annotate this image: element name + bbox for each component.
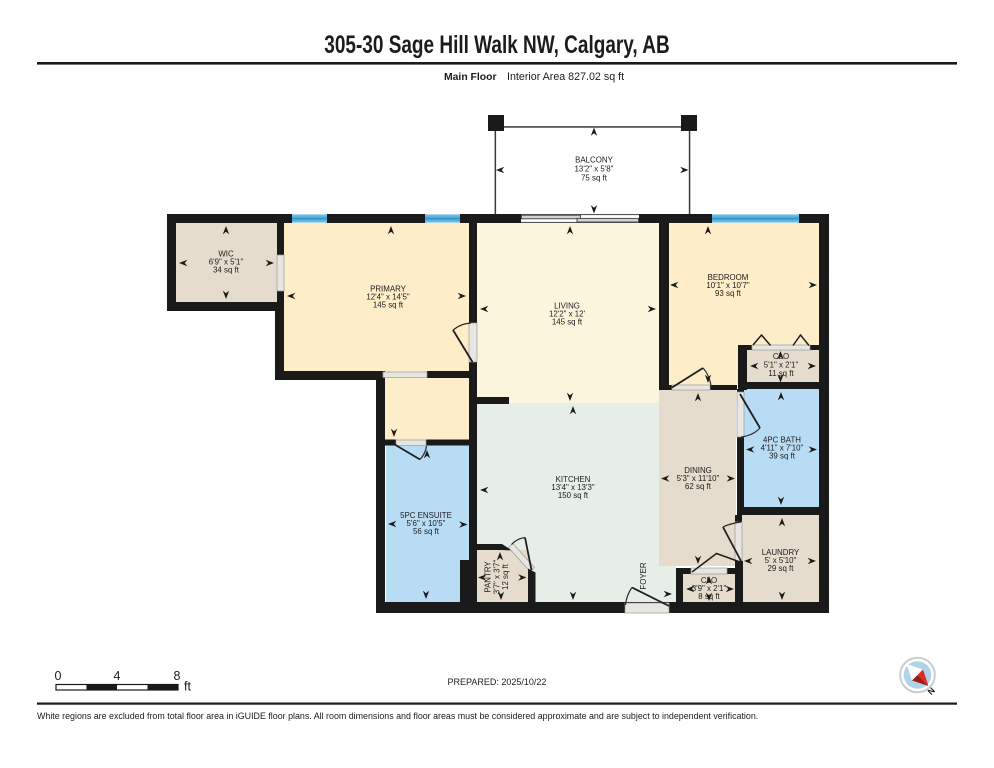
svg-text:93 sq ft: 93 sq ft bbox=[715, 289, 742, 298]
svg-text:ft: ft bbox=[184, 680, 191, 694]
svg-text:Main Floor: Main Floor bbox=[444, 72, 497, 83]
svg-text:29 sq ft: 29 sq ft bbox=[768, 564, 795, 573]
svg-text:145 sq ft: 145 sq ft bbox=[373, 300, 404, 309]
svg-text:PANTRY: PANTRY bbox=[484, 561, 493, 593]
svg-text:305-30 Sage Hill Walk NW, Calg: 305-30 Sage Hill Walk NW, Calgary, AB bbox=[324, 30, 669, 58]
svg-text:62 sq ft: 62 sq ft bbox=[685, 482, 712, 491]
svg-text:12 sq ft: 12 sq ft bbox=[501, 563, 510, 590]
svg-text:13'2" x 5'8": 13'2" x 5'8" bbox=[575, 165, 614, 174]
svg-text:BALCONY: BALCONY bbox=[575, 156, 613, 165]
svg-text:34 sq ft: 34 sq ft bbox=[213, 265, 240, 274]
svg-text:150 sq ft: 150 sq ft bbox=[558, 491, 589, 500]
svg-text:75 sq ft: 75 sq ft bbox=[581, 174, 608, 183]
svg-text:PREPARED: 2025/10/22: PREPARED: 2025/10/22 bbox=[448, 677, 547, 687]
svg-text:39 sq ft: 39 sq ft bbox=[769, 452, 796, 461]
svg-text:FOYER: FOYER bbox=[639, 562, 648, 589]
svg-text:145 sq ft: 145 sq ft bbox=[552, 317, 583, 326]
svg-text:4: 4 bbox=[114, 669, 121, 683]
svg-text:8: 8 bbox=[174, 669, 181, 683]
svg-text:56 sq ft: 56 sq ft bbox=[413, 527, 440, 536]
svg-text:White regions are excluded fro: White regions are excluded from total fl… bbox=[37, 711, 758, 721]
svg-text:0: 0 bbox=[55, 669, 62, 683]
svg-text:Interior Area 827.02 sq ft: Interior Area 827.02 sq ft bbox=[507, 71, 624, 83]
